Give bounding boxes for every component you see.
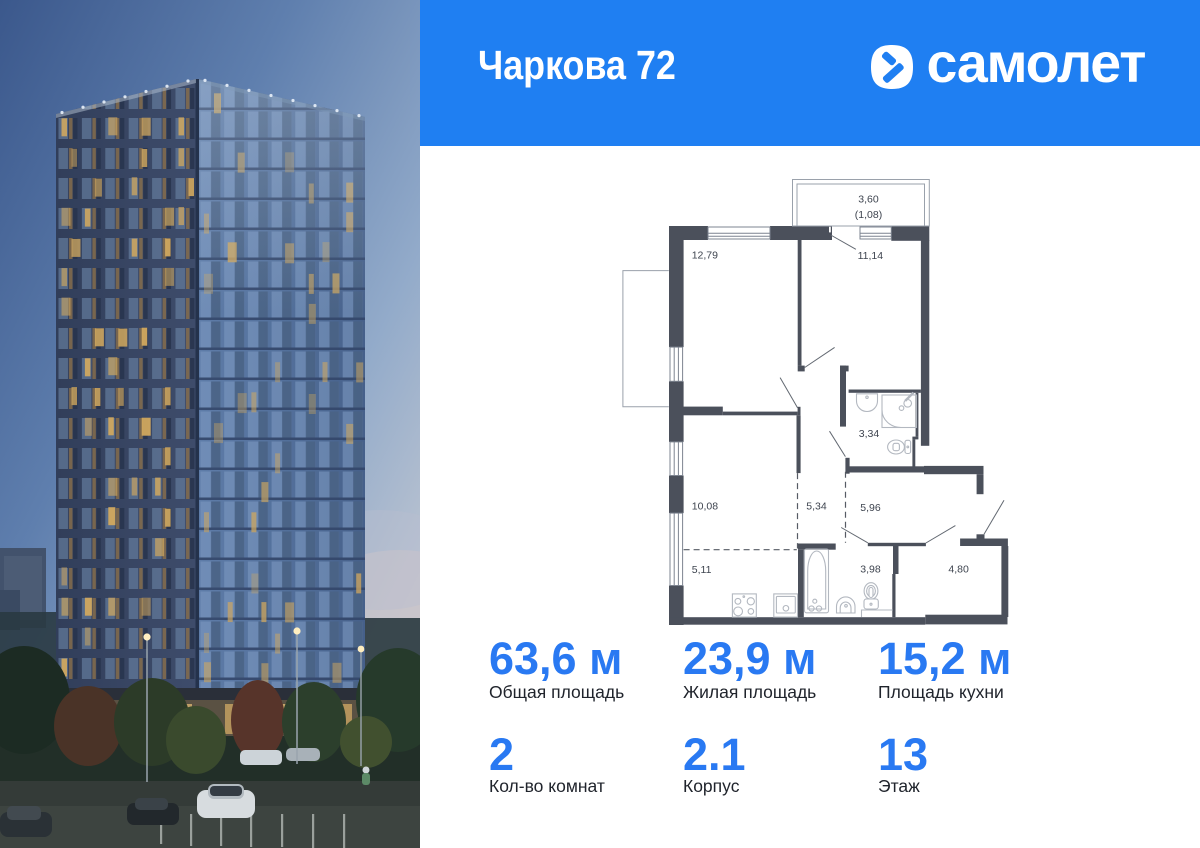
svg-text:3,98: 3,98: [860, 564, 881, 576]
svg-text:5,11: 5,11: [692, 564, 712, 576]
svg-text:самолет: самолет: [927, 44, 1146, 94]
svg-text:3,60: 3,60: [858, 194, 879, 206]
svg-text:5,96: 5,96: [860, 502, 881, 514]
svg-text:11,14: 11,14: [858, 250, 884, 262]
svg-text:5,34: 5,34: [806, 501, 827, 513]
svg-text:12,79: 12,79: [692, 250, 718, 262]
svg-text:(1,08): (1,08): [855, 209, 882, 221]
svg-text:4,80: 4,80: [948, 564, 969, 576]
svg-text:3,34: 3,34: [859, 428, 880, 440]
svg-text:10,08: 10,08: [692, 501, 718, 513]
